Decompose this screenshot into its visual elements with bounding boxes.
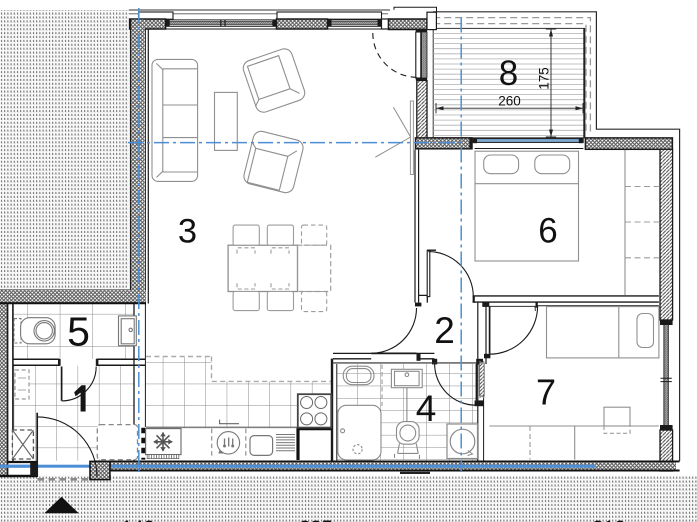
svg-text:175: 175 (537, 67, 552, 90)
svg-text:8: 8 (499, 54, 518, 93)
svg-text:2: 2 (434, 310, 455, 351)
svg-text:335: 335 (299, 518, 332, 522)
svg-text:3: 3 (178, 212, 197, 250)
svg-text:260: 260 (498, 94, 521, 109)
svg-text:7: 7 (536, 371, 556, 412)
svg-text:310: 310 (592, 518, 625, 522)
svg-text:140: 140 (121, 518, 154, 522)
svg-text:6: 6 (538, 211, 557, 250)
svg-text:4: 4 (416, 388, 437, 429)
svg-text:5: 5 (67, 309, 90, 355)
